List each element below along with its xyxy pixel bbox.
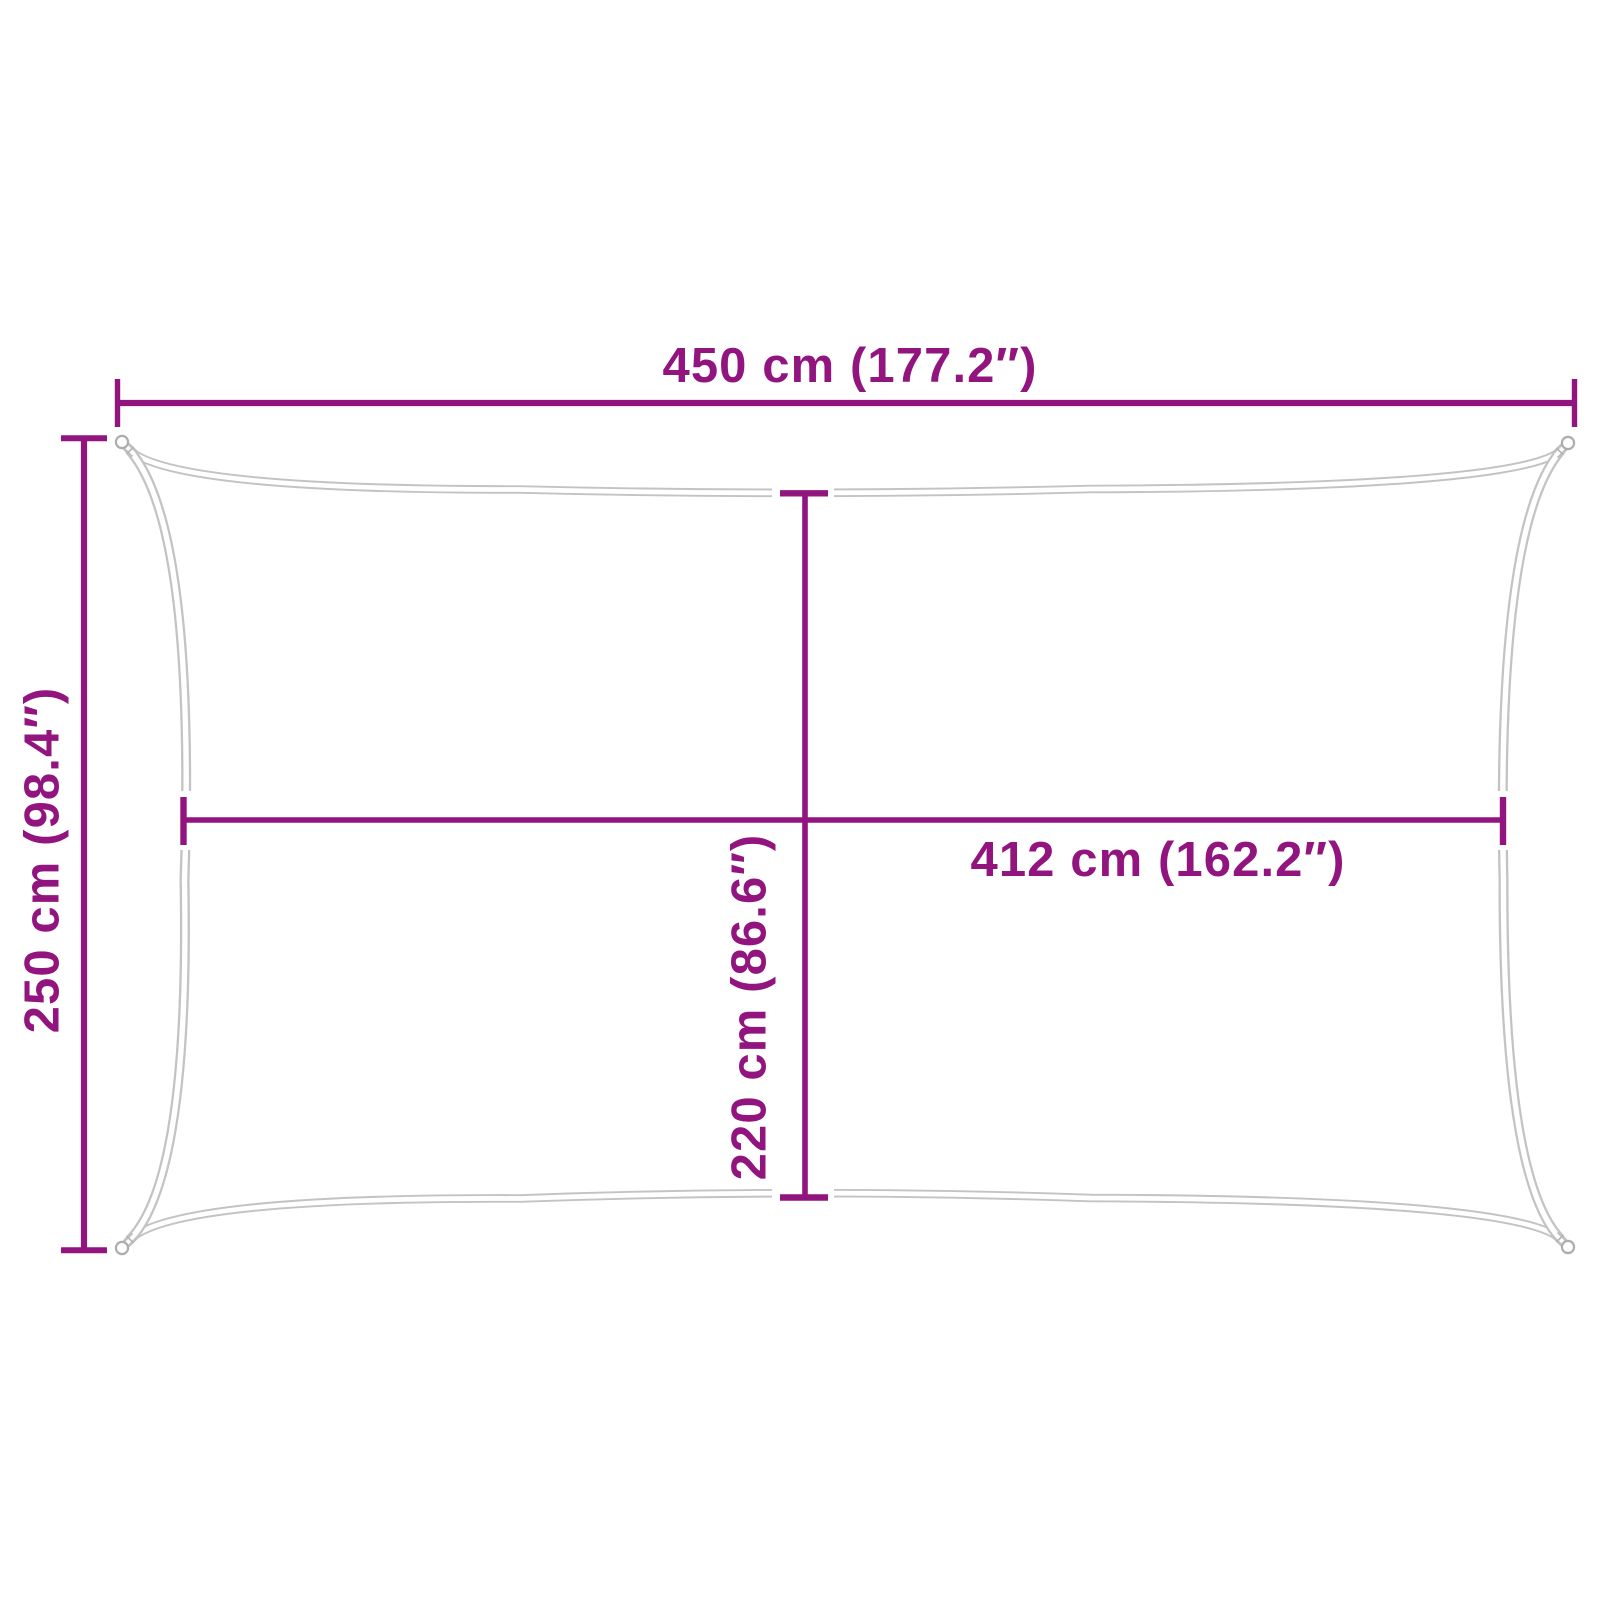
- svg-text:220 cm (86.6″): 220 cm (86.6″): [723, 834, 777, 1181]
- svg-text:412 cm (162.2″): 412 cm (162.2″): [970, 833, 1345, 887]
- svg-text:450 cm (177.2″): 450 cm (177.2″): [662, 339, 1037, 393]
- svg-text:250 cm (98.4″): 250 cm (98.4″): [16, 687, 70, 1034]
